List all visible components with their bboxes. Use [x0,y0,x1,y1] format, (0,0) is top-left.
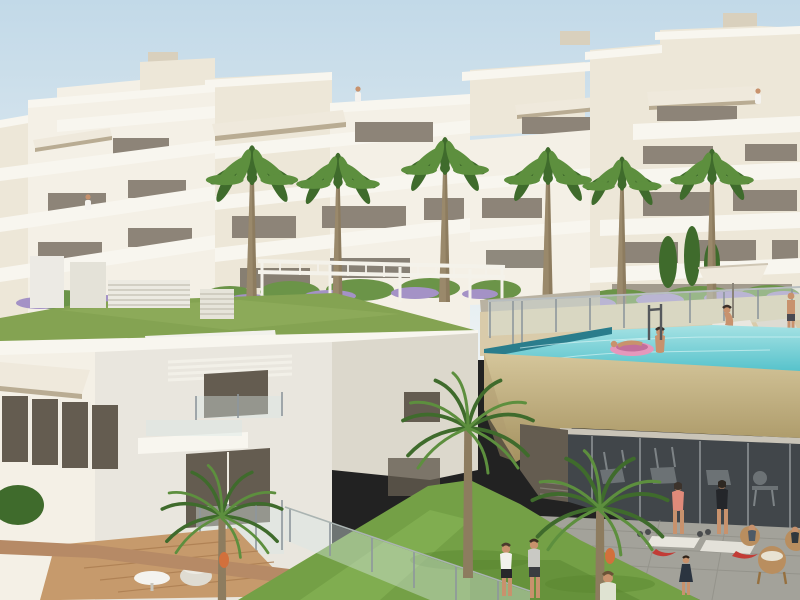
seated-person [748,525,756,541]
coffee-table [134,571,170,585]
roof-terrace-person [355,86,361,102]
architectural-render-image: Exterior render of a modern white terrac… [0,0,800,600]
balcony-person-white-dress [85,194,91,210]
render-canvas [0,0,800,600]
balcony-person [755,88,761,104]
roof-vent [560,31,590,45]
palm-flowers [605,548,615,564]
palm-flowers [219,552,229,568]
seated-person [791,527,799,543]
gym-entrance [520,424,568,502]
gym [520,424,800,530]
